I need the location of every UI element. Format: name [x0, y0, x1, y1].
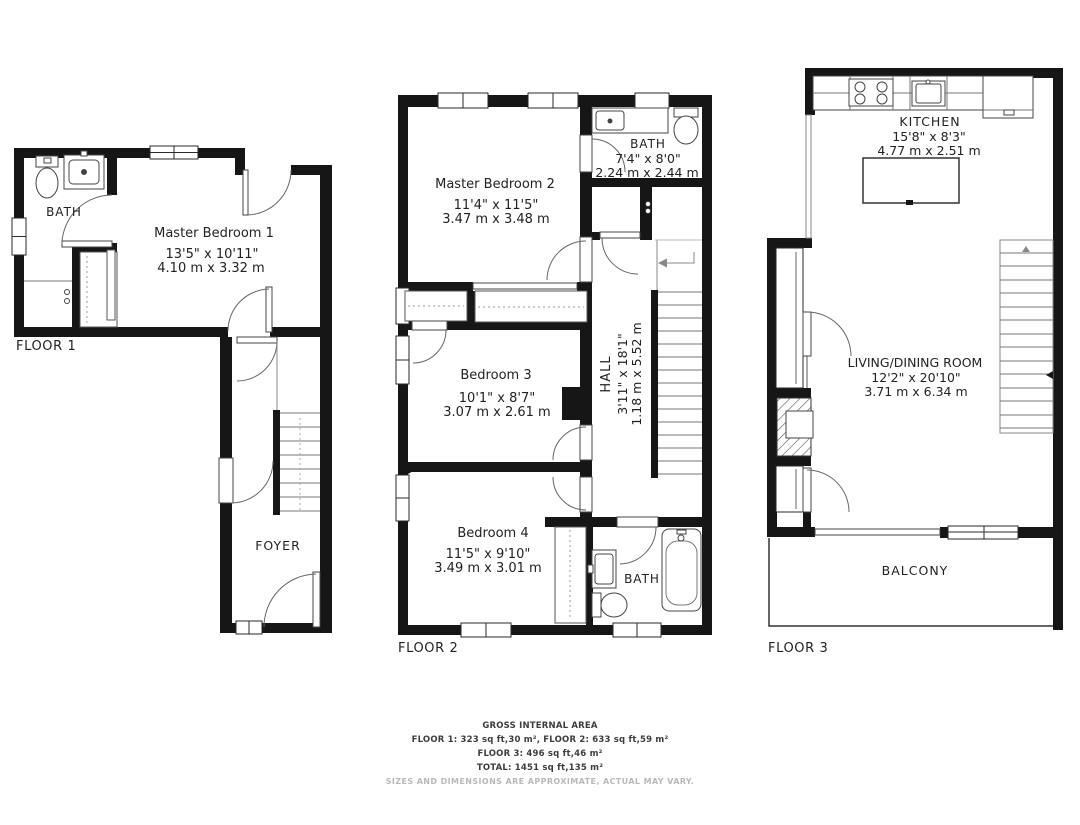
door-leaf	[243, 170, 248, 215]
kitchen-sink-icon	[912, 80, 945, 106]
toilet-button	[44, 158, 51, 163]
window-icon	[635, 93, 669, 108]
door-leaf	[803, 312, 811, 356]
toilet-tank	[592, 593, 601, 617]
floor3-label: FLOOR 3	[768, 641, 828, 656]
door-icon	[553, 477, 592, 512]
door-leaf	[803, 468, 811, 512]
area-summary: GROSS INTERNAL AREA FLOOR 1: 323 sq ft,3…	[0, 719, 1080, 789]
door-arc	[807, 470, 849, 512]
fridge-handle	[1004, 110, 1014, 115]
knob	[646, 202, 651, 207]
glass-front	[815, 529, 940, 535]
door-frame	[580, 425, 592, 460]
island-icon	[863, 158, 959, 205]
window-icon	[438, 93, 488, 108]
room-label-bath-upper: BATH	[630, 137, 666, 151]
room-size-imperial: 3'11" x 18'1"	[615, 333, 630, 414]
toilet-icon	[592, 593, 627, 617]
stair-steps	[658, 292, 702, 474]
floor1-plan: BATH Master Bedroom 1 13'5" x 10'11" 4.1…	[12, 146, 332, 634]
window-icon	[150, 146, 198, 159]
door-leaf	[600, 232, 640, 238]
vanity-tap	[588, 565, 593, 573]
room-size-metric: 3.49 m x 3.01 m	[434, 561, 541, 576]
floor1-walls	[14, 148, 332, 633]
sink-tap	[926, 80, 930, 84]
room-size-metric: 4.77 m x 2.51 m	[877, 143, 980, 158]
room-label-hall: HALL	[599, 355, 614, 392]
bathtub-icon	[662, 529, 701, 611]
shower-control-icon	[24, 281, 72, 304]
stair-steps	[280, 413, 320, 511]
wardrobe-icon	[80, 250, 117, 327]
closet-front	[473, 283, 577, 289]
burner	[877, 82, 887, 92]
window-icon	[776, 466, 803, 512]
window-icon	[776, 248, 803, 388]
area-disclaimer: SIZES AND DIMENSIONS ARE APPROXIMATE, AC…	[0, 775, 1080, 789]
area-floor-3: FLOOR 3: 496 sq ft,46 m²	[0, 747, 1080, 761]
door-arc	[807, 312, 851, 356]
door-frame	[580, 237, 592, 282]
room-label-master-bedroom-1: Master Bedroom 1	[154, 226, 274, 241]
area-total: TOTAL: 1451 sq ft,135 m²	[0, 761, 1080, 775]
toilet-bowl	[36, 168, 58, 198]
room-label-bedroom-4: Bedroom 4	[457, 526, 528, 541]
window-icon	[236, 621, 262, 634]
room-label-bedroom-3: Bedroom 3	[460, 368, 531, 383]
refrigerator-icon	[983, 76, 1033, 118]
tub-inner	[666, 541, 697, 605]
sink-tap	[81, 151, 87, 156]
area-summary-title: GROSS INTERNAL AREA	[0, 719, 1080, 733]
room-size-metric: 3.71 m x 6.34 m	[864, 384, 967, 399]
door-icon	[264, 572, 320, 627]
room-size-imperial: 11'5" x 9'10"	[446, 547, 531, 562]
room-size-imperial: 11'4" x 11'5"	[454, 198, 539, 213]
window-frame	[776, 248, 803, 388]
toilet-icon	[36, 156, 58, 198]
door-icon	[243, 170, 291, 215]
sink-drain	[82, 170, 87, 175]
window-frame	[776, 466, 803, 512]
door-icon	[803, 312, 851, 356]
door-icon	[228, 287, 272, 332]
burner	[855, 94, 865, 104]
door-frame	[617, 517, 658, 527]
door-arc	[602, 238, 638, 274]
stairs-icon	[655, 240, 702, 474]
door-icon	[237, 337, 277, 381]
room-size-metric: 3.47 m x 3.48 m	[442, 212, 549, 227]
window-icon	[461, 623, 511, 637]
burner	[877, 94, 887, 104]
shower-knob	[65, 299, 70, 304]
room-label-master-bedroom-2: Master Bedroom 2	[435, 177, 555, 192]
floor2-plan: Master Bedroom 2 11'4" x 11'5" 3.47 m x …	[396, 93, 712, 656]
window-icon	[396, 336, 409, 384]
floor2-label: FLOOR 2	[398, 641, 458, 656]
door-leaf	[266, 287, 272, 332]
door-icon	[62, 195, 112, 247]
knob	[646, 209, 651, 214]
window-icon	[12, 218, 26, 255]
room-size-metric: 1.18 m x 5.52 m	[629, 322, 644, 425]
door-icon	[803, 468, 849, 512]
door-icon	[617, 517, 658, 564]
island-top	[863, 158, 959, 203]
toilet-bowl	[674, 116, 698, 144]
shower-knob	[65, 290, 70, 295]
wardrobe-icon	[405, 291, 467, 321]
window-frame	[635, 93, 669, 108]
door-icon	[600, 232, 640, 274]
sink-basin	[916, 84, 941, 103]
sliding-door-icon	[948, 526, 1018, 539]
room-size-imperial: 12'2" x 20'10"	[871, 370, 960, 385]
island-tick	[906, 200, 913, 205]
door-leaf	[237, 337, 277, 343]
burner	[855, 82, 865, 92]
toilet-icon	[674, 108, 698, 144]
wardrobe-icon	[475, 291, 587, 322]
room-size-imperial: 7'4" x 8'0"	[615, 151, 681, 166]
stair-direction-line	[666, 252, 694, 263]
flue-box	[786, 411, 813, 438]
room-label-living-dining: LIVING/DINING ROOM	[848, 355, 983, 370]
vanity-icon	[588, 550, 616, 588]
door-leaf	[62, 241, 112, 247]
door-arc	[237, 341, 277, 381]
room-size-metric: 3.07 m x 2.61 m	[443, 405, 550, 420]
tub-drain	[678, 535, 684, 541]
toilet-bowl	[601, 593, 627, 617]
door-arc	[62, 195, 112, 244]
window-icon	[396, 475, 409, 521]
floor3-plan: KITCHEN 15'8" x 8'3" 4.77 m x 2.51 m LIV…	[767, 68, 1063, 656]
kitchen-counter-icon	[813, 76, 983, 110]
window-icon	[528, 93, 578, 108]
room-label-balcony: BALCONY	[882, 563, 949, 578]
room-size-imperial: 10'1" x 8'7"	[459, 391, 535, 406]
room-size-metric: 2.24 m x 2.44 m	[595, 165, 698, 180]
tub-tap	[677, 530, 686, 534]
door-arc	[228, 289, 269, 331]
door-arc	[620, 527, 656, 564]
door-arc	[413, 330, 446, 363]
room-label-kitchen: KITCHEN	[899, 114, 960, 129]
door-icon	[553, 425, 592, 460]
room-size-imperial: 13'5" x 10'11"	[166, 247, 259, 262]
door-frame	[219, 458, 233, 503]
room-label-bath: BATH	[46, 205, 82, 219]
floorplan-page: BATH Master Bedroom 1 13'5" x 10'11" 4.1…	[0, 0, 1080, 825]
door-frame	[580, 477, 592, 512]
door-frame	[412, 321, 447, 330]
vanity-basin	[595, 554, 613, 584]
wardrobe-door-panel	[107, 250, 115, 320]
closet-icon	[555, 527, 586, 623]
balcony-rail	[769, 538, 1053, 626]
room-label-bath-lower: BATH	[624, 572, 660, 586]
stairs-icon	[1000, 240, 1053, 433]
door-arc	[264, 574, 316, 627]
stove-icon	[849, 79, 893, 106]
fireplace-flue-icon	[777, 398, 813, 456]
room-size-imperial: 15'8" x 8'3"	[892, 129, 965, 144]
door-arc	[231, 461, 273, 503]
door-arc	[248, 170, 291, 215]
sink-icon	[592, 108, 668, 133]
stairs-icon	[277, 345, 320, 513]
stair-outline	[1000, 240, 1053, 433]
window-icon	[613, 623, 661, 637]
wardrobe-box	[475, 291, 587, 322]
glass-wall	[806, 115, 811, 238]
door-icon	[219, 458, 273, 503]
area-floors-1-2: FLOOR 1: 323 sq ft,30 m², FLOOR 2: 633 s…	[0, 733, 1080, 747]
floorplan-drawing: BATH Master Bedroom 1 13'5" x 10'11" 4.1…	[0, 0, 1080, 825]
door-frame	[580, 135, 592, 172]
sink-drain	[608, 119, 612, 123]
floor1-label: FLOOR 1	[16, 339, 76, 354]
door-icon	[547, 237, 592, 282]
sink-icon	[64, 151, 104, 189]
stair-arrow	[658, 259, 667, 268]
room-size-metric: 4.10 m x 3.32 m	[157, 261, 264, 276]
door-icon	[412, 321, 447, 363]
room-label-foyer: FOYER	[255, 538, 301, 553]
door-leaf	[313, 572, 320, 627]
